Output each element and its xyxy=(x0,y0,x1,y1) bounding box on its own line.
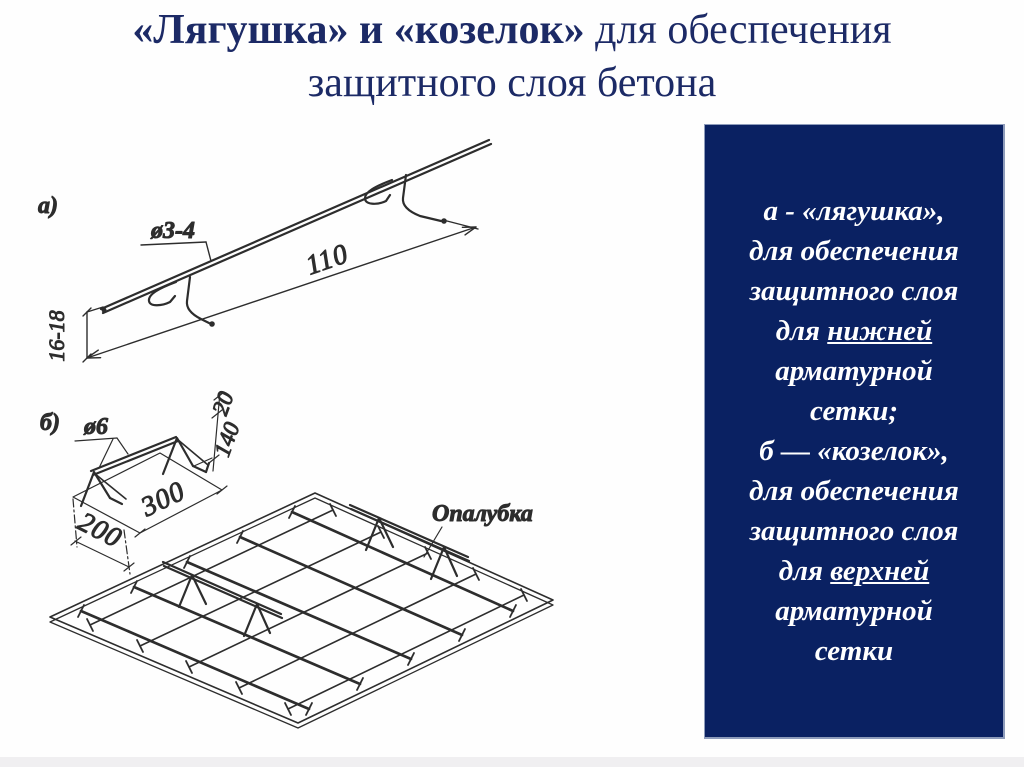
panel-line-underlined-word: верхней xyxy=(830,555,929,587)
panel-line: защитного слоя xyxy=(705,511,1003,551)
panel-line: для верхней xyxy=(705,551,1003,591)
panel-line: а - «лягушка», xyxy=(705,191,1003,231)
panel-line: для обеспечения xyxy=(705,231,1003,271)
panel-line: сетки; xyxy=(705,391,1003,431)
slide: «Лягушка» и «козелок» для обеспечения за… xyxy=(0,0,1024,767)
panel-line: арматурной xyxy=(705,591,1003,631)
panel-line: для обеспечения xyxy=(705,471,1003,511)
panel-line-prefix: для xyxy=(776,315,827,347)
bottom-edge-strip xyxy=(0,757,1024,767)
panel-line-prefix: для xyxy=(779,555,830,587)
diagram-b-leg-label: 140 xyxy=(209,418,244,459)
diagram-a-length-label: 110 xyxy=(302,238,353,281)
panel-line: арматурной xyxy=(705,351,1003,391)
formwork-label: Опалубка xyxy=(432,501,533,527)
panel-line: для нижней xyxy=(705,311,1003,351)
info-panel: а - «лягушка», для обеспечения защитного… xyxy=(704,124,1005,739)
diagram-b-label: б) xyxy=(40,410,60,436)
diagram-a-diameter-label: ø3-4 xyxy=(150,218,195,244)
diagram-b-length-label: 300 xyxy=(135,476,190,524)
panel-line: сетки xyxy=(705,631,1003,671)
panel-line-underlined-word: нижней xyxy=(827,315,932,347)
panel-line: б — «козелок», xyxy=(705,431,1003,471)
panel-line: защитного слоя xyxy=(705,271,1003,311)
diagram-a-label: а) xyxy=(38,193,58,219)
diagram-a-height-label: 16-18 xyxy=(44,310,69,361)
diagram-b-hook-label: 20 xyxy=(207,388,239,419)
diagram-b-diameter-label: ø6 xyxy=(83,414,108,440)
rebar-mesh xyxy=(78,504,527,715)
diagram-b-width-label: 200 xyxy=(73,506,127,554)
